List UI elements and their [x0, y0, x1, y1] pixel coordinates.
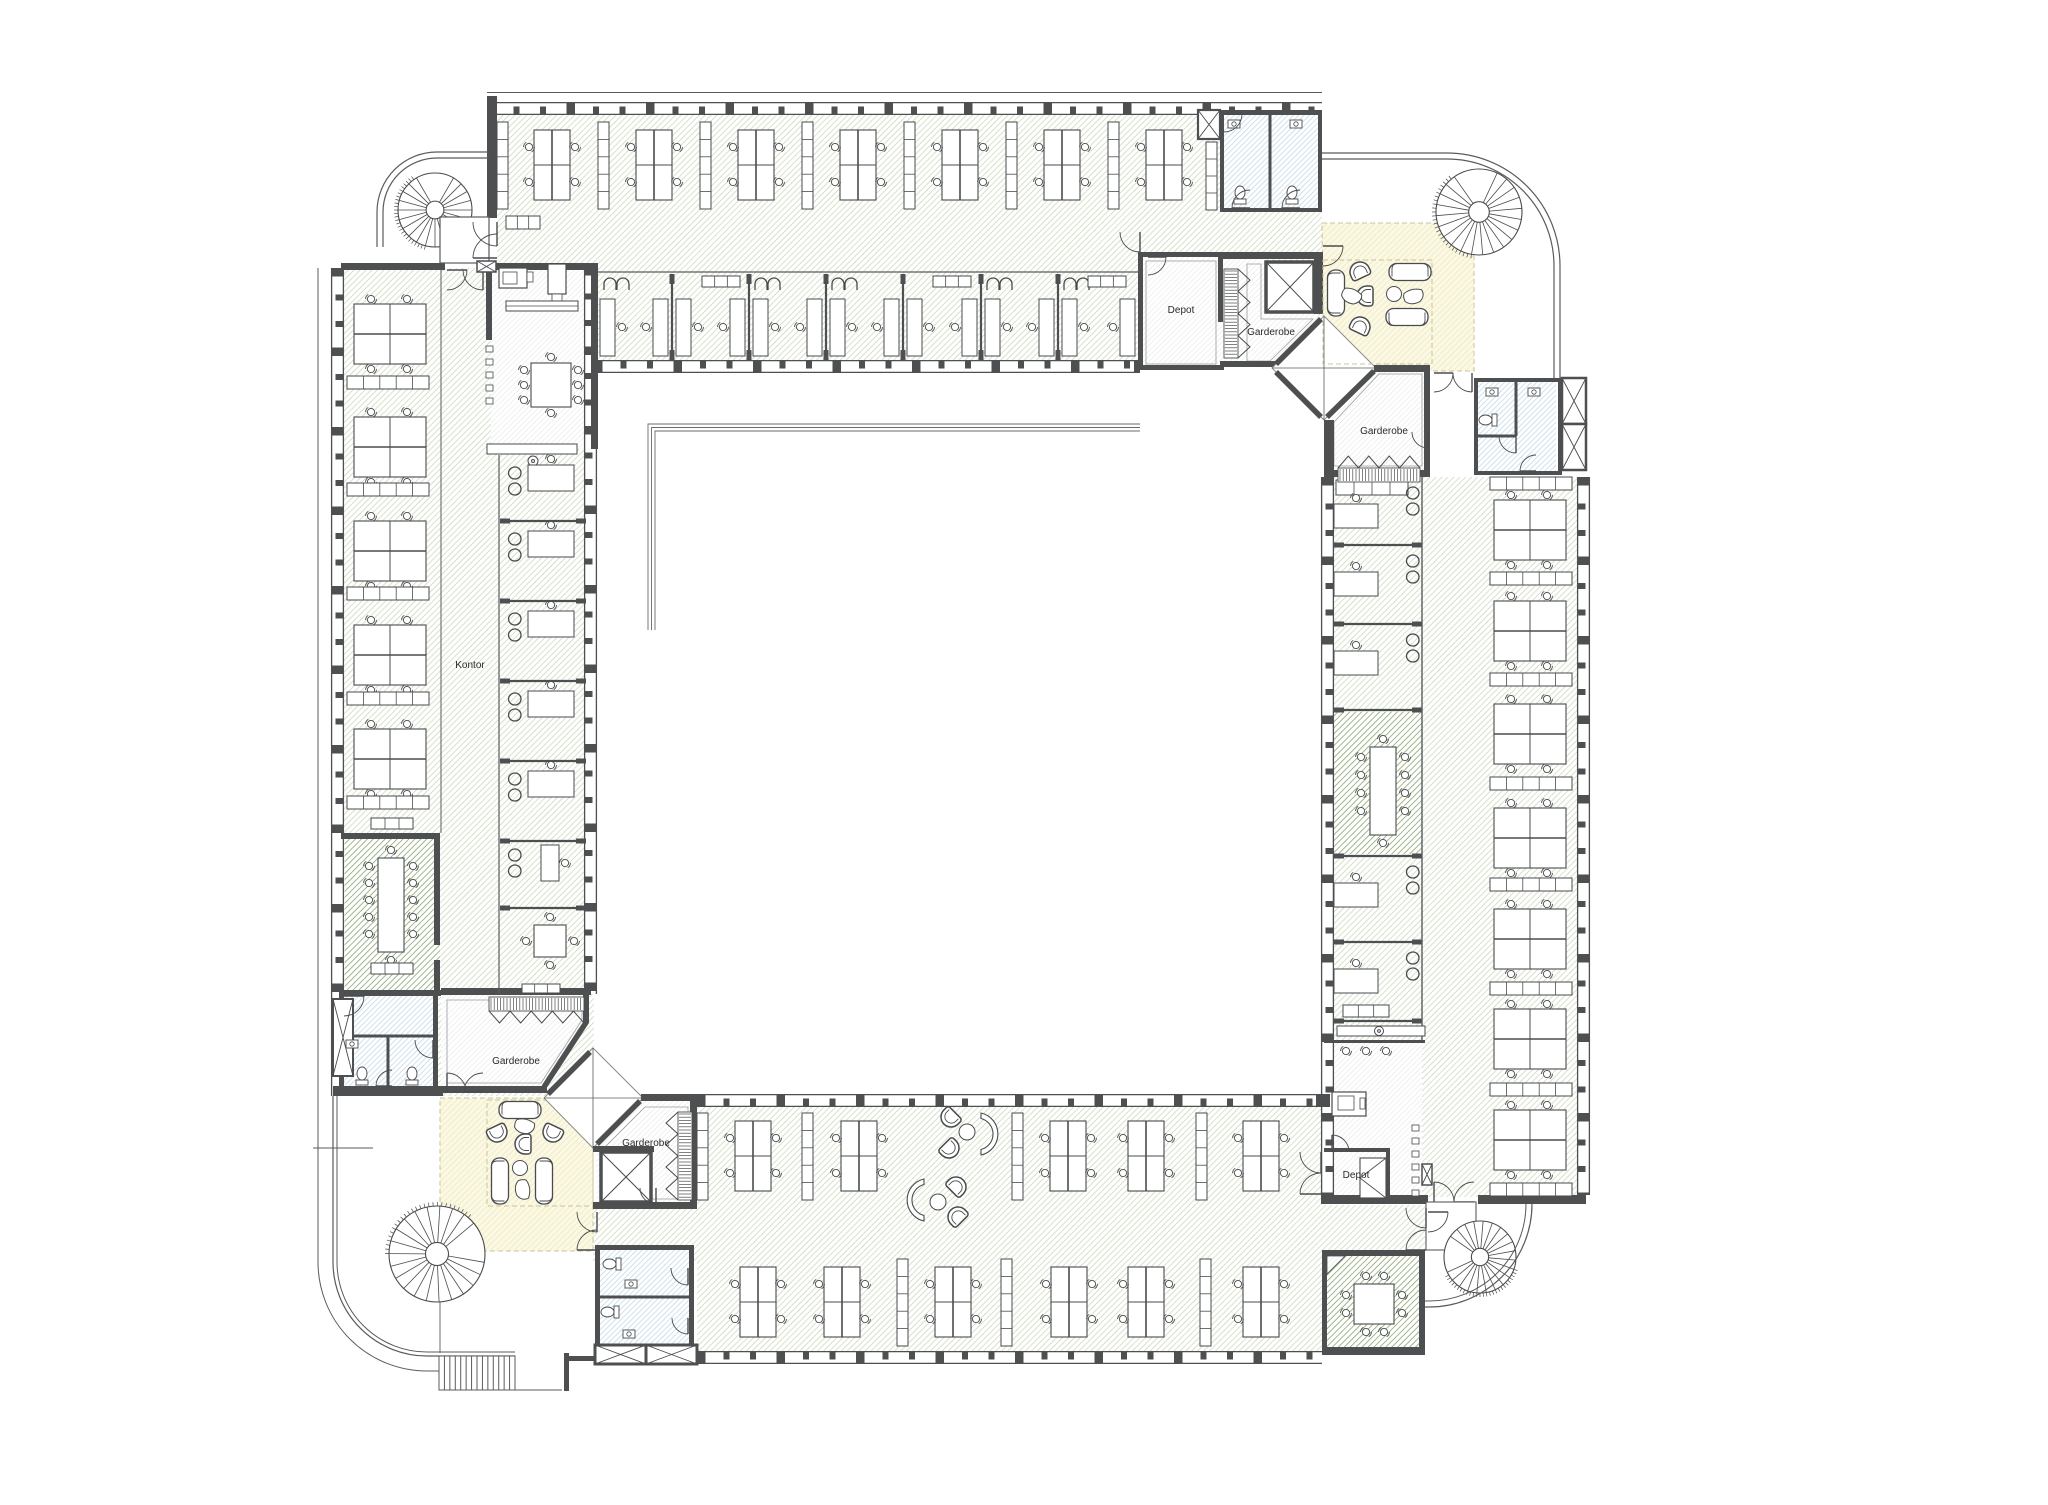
svg-text:Garderobe: Garderobe: [622, 1138, 670, 1149]
svg-text:Depot: Depot: [1168, 305, 1195, 316]
svg-text:Garderobe: Garderobe: [1247, 327, 1295, 338]
svg-text:Garderobe: Garderobe: [1360, 426, 1408, 437]
svg-text:Depot: Depot: [1343, 1170, 1370, 1181]
svg-text:Garderobe: Garderobe: [492, 1056, 540, 1067]
svg-text:Kontor: Kontor: [455, 660, 485, 671]
